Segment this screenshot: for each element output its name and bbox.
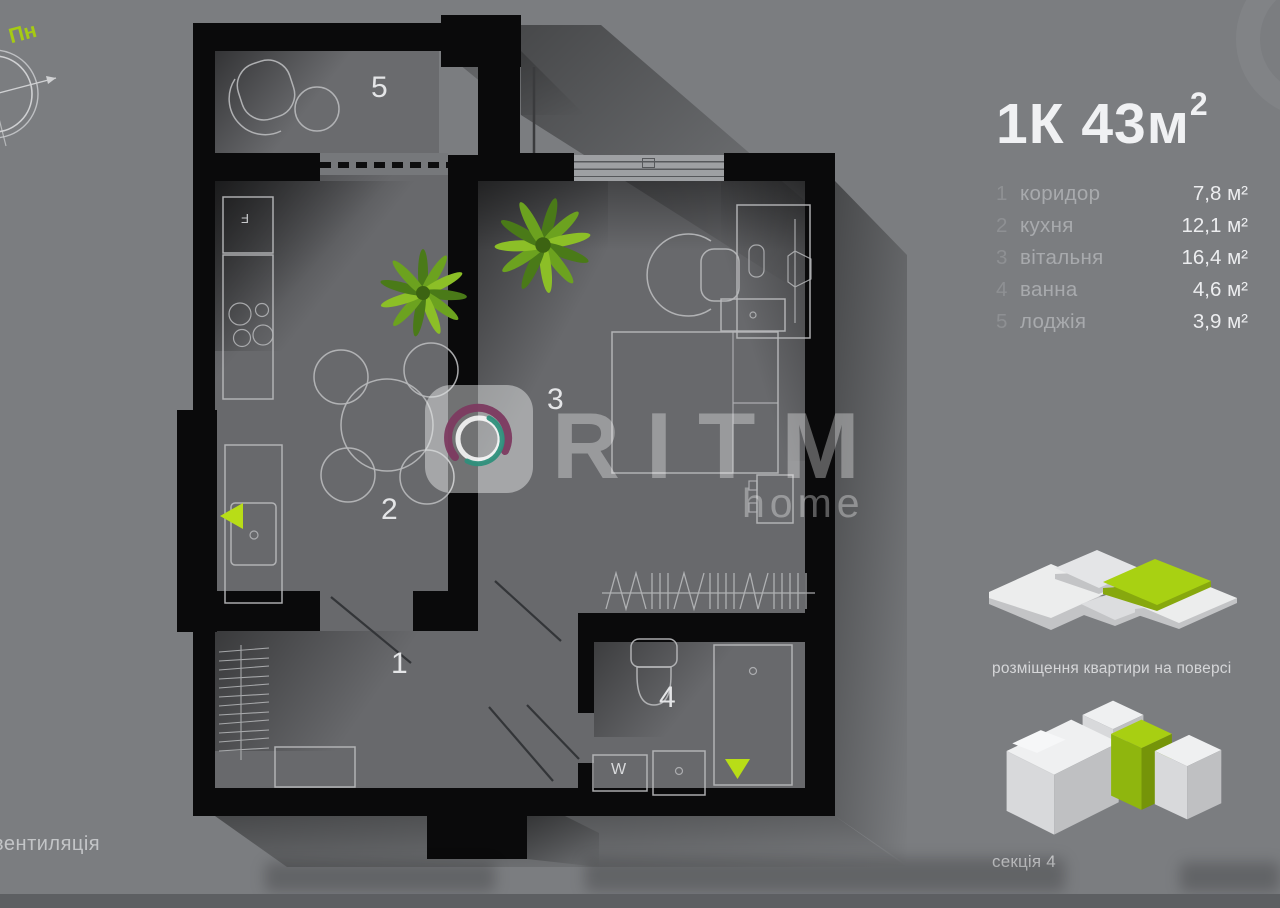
watermark-sub: home [742, 480, 865, 527]
bath-sink [653, 751, 705, 795]
corridor-cabinet [275, 747, 355, 787]
door-bathroom [527, 705, 579, 759]
legend-name: коридор [1020, 182, 1100, 206]
legend-row: 3 вітальня 16,4 м² [996, 246, 1248, 278]
floor-placement-diagram [985, 548, 1240, 658]
placement-caption: розміщення квартири на поверсі [992, 660, 1252, 678]
legend-number: 2 [996, 214, 1020, 238]
bottom-shadow-blob [265, 862, 495, 892]
apartment-title-sup: 2 [1190, 86, 1209, 122]
legend-area: 3,9 м² [1193, 310, 1248, 334]
door-entry [489, 707, 553, 781]
legend-row: 1 коридор 7,8 м² [996, 182, 1248, 214]
desk-chair [647, 234, 739, 316]
legend-row: 4 ванна 4,6 м² [996, 278, 1248, 310]
legend-name: кухня [1020, 214, 1074, 238]
room-number-5: 5 [371, 71, 388, 105]
legend-row: 2 кухня 12,1 м² [996, 214, 1248, 246]
kitchen-cabinets [223, 197, 282, 603]
legend-area: 4,6 м² [1193, 278, 1248, 302]
legend-area: 7,8 м² [1193, 182, 1248, 206]
legend-area: 12,1 м² [1181, 214, 1248, 238]
legend-name: ванна [1020, 278, 1078, 302]
fridge-label: F [241, 211, 249, 226]
plant-kitchen [379, 249, 467, 337]
room-number-4: 4 [659, 681, 676, 715]
room-number-1: 1 [391, 647, 408, 681]
ventilation-label: вентиляція [0, 833, 100, 856]
plant-living [494, 197, 591, 294]
bottom-strip [0, 894, 1280, 908]
legend-number: 5 [996, 310, 1020, 334]
shower [714, 645, 792, 785]
apartment-title-main: 1К 43м [996, 92, 1190, 156]
apartment-title: 1К 43м2 [996, 86, 1209, 157]
legend-name: вітальня [1020, 246, 1103, 270]
bottom-shadow-blob [1180, 862, 1280, 892]
wardrobe-living [602, 573, 815, 609]
info-panel: 1К 43м2 1 коридор 7,8 м² 2 кухня 12,1 м²… [990, 0, 1280, 908]
room-legend: 1 коридор 7,8 м² 2 кухня 12,1 м² 3 вітал… [996, 182, 1248, 342]
compass-icon [0, 42, 112, 182]
legend-name: лоджія [1020, 310, 1086, 334]
vent-marker-bath [725, 759, 750, 779]
desk [737, 205, 811, 338]
room-number-2: 2 [381, 493, 398, 527]
legend-area: 16,4 м² [1181, 246, 1248, 270]
stove-burners [229, 303, 273, 347]
legend-number: 4 [996, 278, 1020, 302]
loggia-armchair [229, 54, 339, 135]
legend-number: 1 [996, 182, 1020, 206]
door-living [495, 581, 561, 641]
section-diagram [993, 694, 1233, 846]
legend-number: 3 [996, 246, 1020, 270]
bottom-shadow-blob [585, 858, 1065, 892]
wardrobe-corridor [219, 645, 269, 760]
ritm-logo-icon [425, 385, 533, 493]
legend-row: 5 лоджія 3,9 м² [996, 310, 1248, 342]
washer-label: W [611, 761, 626, 779]
